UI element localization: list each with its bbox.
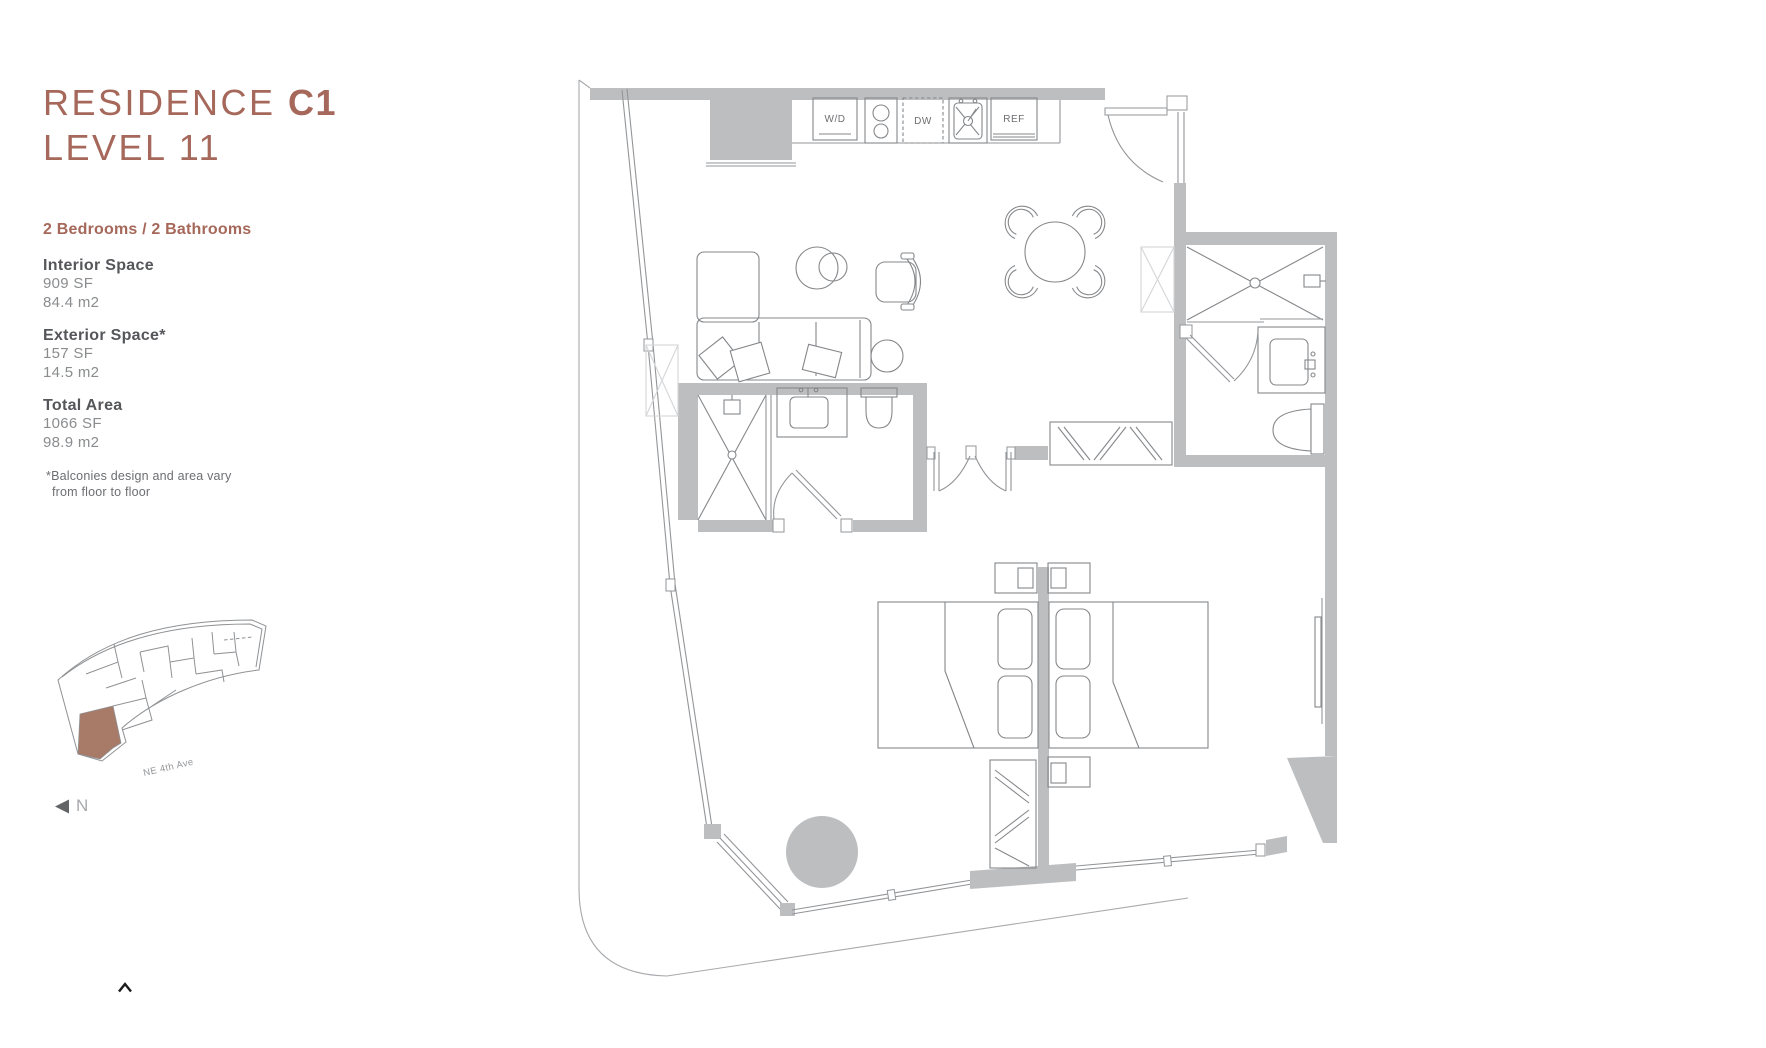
master-bathroom <box>646 345 927 532</box>
stat-interior-space: Interior Space 909 SF 84.4 m2 <box>43 256 166 312</box>
title-level: LEVEL 11 <box>43 127 221 168</box>
bedroom-2-closet <box>990 760 1036 868</box>
sofa <box>697 252 871 382</box>
stat-value-m2: 84.4 m2 <box>43 294 166 313</box>
dining-area <box>998 199 1112 305</box>
shower-2 <box>1187 247 1326 322</box>
washer-dryer-label: W/D <box>825 114 846 125</box>
nightstand-lamp <box>1051 568 1066 588</box>
stat-label: Total Area <box>43 396 166 415</box>
stat-label: Interior Space <box>43 256 166 275</box>
bed-bath-summary: 2 Bedrooms / 2 Bathrooms <box>43 221 251 239</box>
kitchen-sink <box>949 98 987 143</box>
nightstand-lamp <box>1018 568 1033 588</box>
page-title: RESIDENCE C1 LEVEL 11 <box>43 80 337 170</box>
bed-1 <box>1049 602 1208 748</box>
toilet-2 <box>1273 404 1324 454</box>
stat-value-sf: 157 SF <box>43 345 166 364</box>
floorplan-drawing: W/D DW REF <box>570 70 1350 1000</box>
vanity-sink-2 <box>1258 327 1325 393</box>
master-bath-door <box>773 470 852 532</box>
shaft-column <box>710 93 792 160</box>
street-label: NE 4th Ave <box>142 757 195 779</box>
bed-2 <box>878 602 1038 748</box>
north-label: N <box>76 796 89 816</box>
dishwasher-label: DW <box>914 116 932 127</box>
dining-table <box>1025 222 1085 282</box>
bedroom-1 <box>1048 563 1322 787</box>
footnote-line-1: *Balconies design and area vary <box>46 468 231 484</box>
entry-door <box>1105 96 1187 182</box>
bedroom-2 <box>786 563 1038 888</box>
coffee-table <box>796 247 847 289</box>
footnote-line-2: from floor to floor <box>46 484 231 500</box>
cooktop <box>865 98 897 143</box>
hall-closet <box>1050 422 1172 465</box>
living-room <box>697 247 921 382</box>
north-arrow-icon <box>55 799 70 814</box>
west-window-wall <box>622 89 795 916</box>
stat-value-sf: 909 SF <box>43 275 166 294</box>
stat-value-m2: 98.9 m2 <box>43 434 166 453</box>
hall-closet-small <box>1141 247 1174 312</box>
master-vanity-sink <box>777 388 847 437</box>
armchair <box>876 253 921 310</box>
demising-wall <box>1038 567 1049 878</box>
refrigerator-label: REF <box>1003 114 1025 125</box>
side-table <box>871 340 903 372</box>
wall-tv <box>1315 598 1322 724</box>
master-shower <box>698 395 771 520</box>
area-stats: Interior Space 909 SF 84.4 m2 Exterior S… <box>43 256 166 466</box>
bedroom-doors <box>927 446 1048 491</box>
stat-value-m2: 14.5 m2 <box>43 364 166 383</box>
building-keyplan: NE 4th Ave <box>56 618 272 790</box>
refrigerator: REF <box>991 98 1037 140</box>
round-ottoman <box>786 816 858 888</box>
nightstand-lamp <box>1051 763 1066 783</box>
stat-value-sf: 1066 SF <box>43 415 166 434</box>
chevron-up-icon[interactable] <box>117 980 133 998</box>
stat-total-area: Total Area 1066 SF 98.9 m2 <box>43 396 166 452</box>
bathroom-2 <box>1141 247 1326 454</box>
title-unit-number: C1 <box>288 82 337 123</box>
walls <box>590 88 1337 856</box>
bathroom-2-door <box>1180 325 1258 382</box>
balcony-railing <box>792 844 1265 914</box>
title-residence: RESIDENCE <box>43 82 288 123</box>
washer-dryer: W/D <box>813 98 857 140</box>
stat-label: Exterior Space* <box>43 326 166 345</box>
stat-exterior-space: Exterior Space* 157 SF 14.5 m2 <box>43 326 166 382</box>
north-indicator: N <box>55 796 89 816</box>
kitchen: W/D DW REF <box>706 93 1060 166</box>
balcony-footnote: *Balconies design and area vary from flo… <box>46 468 231 500</box>
dishwasher: DW <box>903 98 943 143</box>
